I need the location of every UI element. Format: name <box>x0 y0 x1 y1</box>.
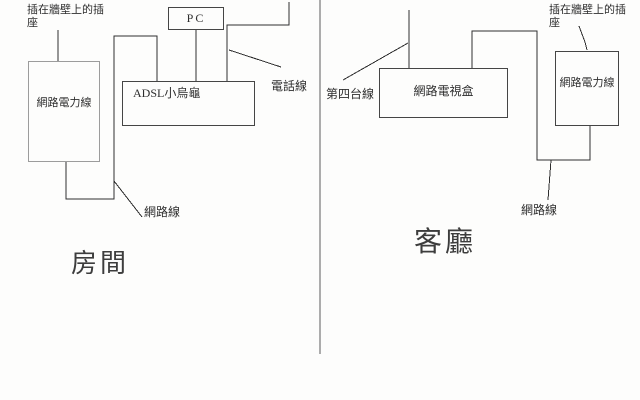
room-title: 房間 <box>71 243 129 280</box>
network-line-label-living: 網路線 <box>521 204 557 217</box>
phone-line-label: 電話線 <box>271 80 307 93</box>
phone-line-pointer <box>229 50 281 67</box>
adsl-modem-box: ADSL小烏龜 <box>122 81 255 126</box>
wall-socket-label-living: 插在牆壁上的插座 <box>549 4 629 30</box>
network-line-pointer-room <box>114 181 142 217</box>
wiring-layer <box>0 0 640 400</box>
pc-box: PC <box>168 7 224 30</box>
network-line-pointer-living <box>548 160 551 200</box>
adsl-modem-label: ADSL小烏龜 <box>133 87 200 100</box>
powerline-adapter-box-room: 網路電力線 <box>28 61 100 162</box>
powerline-adapter-label-room: 網路電力線 <box>37 97 92 110</box>
network-tv-box-label: 網路電視盒 <box>413 85 473 98</box>
network-tv-box: 網路電視盒 <box>379 68 508 118</box>
wall-socket-label-room: 插在牆壁上的插座 <box>27 4 107 30</box>
pc-label: PC <box>187 12 206 25</box>
living-room-title: 客廳 <box>414 220 476 260</box>
powerline-adapter-box-living: 網路電力線 <box>555 51 619 126</box>
cable-tv-line-label: 第四台線 <box>326 88 374 101</box>
phone-wire <box>227 2 289 81</box>
network-line-label-room: 網路線 <box>144 206 180 219</box>
paint-network-diagram: 網路電力線 ADSL小烏龜 PC 網路電視盒 網路電力線 插在牆壁上的插座 電話… <box>0 0 640 400</box>
powerline-adapter-label-living: 網路電力線 <box>560 77 615 90</box>
